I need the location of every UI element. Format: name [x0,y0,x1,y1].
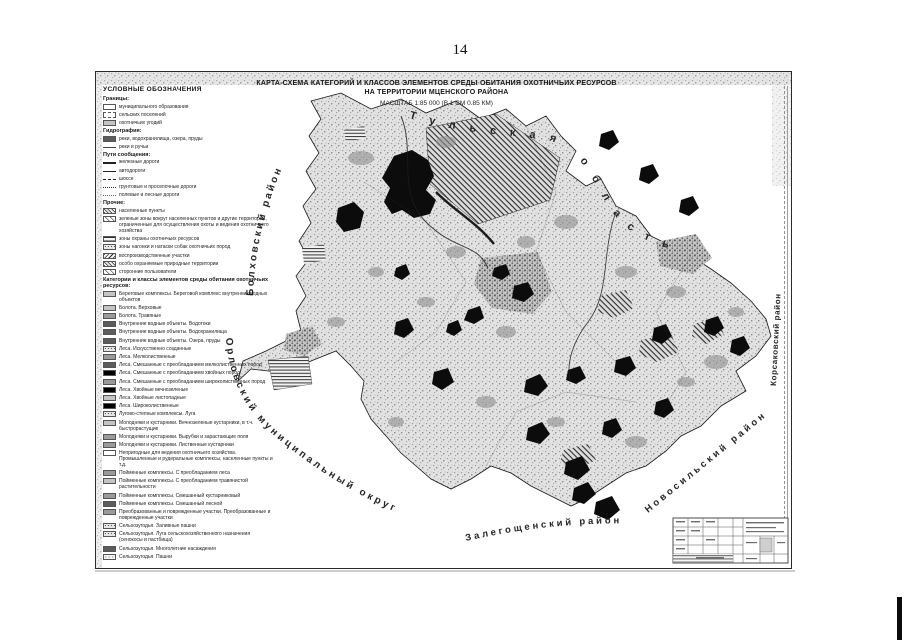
legend-item-label: Внутренние водные объекты. Озера, пруды [119,338,220,344]
legend-section-header: Категории и классы элементов среды обита… [103,277,273,289]
legend-swatch [103,216,116,222]
legend-item-label: Сельхозугодья. Луга сельскохозяйственног… [119,531,273,543]
legend-item-label: зоны нагонки и натаски собак охотничьих … [119,244,230,250]
legend-section-header: Прочие: [103,200,273,206]
legend-item-label: Болота. Травяные [119,313,161,319]
legend-item: Леса. Смешанные с преобладанием широколи… [103,379,273,385]
legend-item-label: сторонние пользователи [119,269,176,275]
legend-item-label: Внутренние водные объекты. Водотоки [119,321,211,327]
legend-swatch [103,554,116,560]
legend-item: Непригодные для ведения охотничьего хозя… [103,450,273,468]
legend-item: Пойменные комплексы. Смешанный кустарник… [103,493,273,499]
page-number: 14 [430,42,490,59]
legend-item-label: Сельхозугодья. Многолетние насаждения [119,546,216,552]
legend-swatch [103,379,116,385]
legend-swatch [103,434,116,440]
legend-item-label: Пойменные комплексы. Смешанный лесной [119,501,222,507]
legend-section-header: Пути сообщения: [103,152,273,158]
legend-item-label: Сельхозугодья. Пашни [119,554,172,560]
legend-swatch [103,171,116,172]
legend-swatch [103,162,116,164]
legend-item: реки, водохранилища, озера, пруды [103,136,273,142]
legend-swatch [103,244,116,250]
legend-item-label: шоссе [119,176,134,182]
legend-item: населенные пункты [103,208,273,214]
legend-swatch [103,112,116,118]
district-shape [238,93,771,520]
legend-item: охотничьих угодий [103,120,273,126]
legend-item: Пойменные комплексы. С преобладанием тра… [103,478,273,490]
legend-swatch [103,253,116,259]
legend-item: полевые и лесные дороги [103,192,273,198]
legend-swatch [103,179,116,180]
legend-item-label: Лугово-степные комплексы. Луга [119,411,195,417]
legend-item: Внутренние водные объекты. Озера, пруды [103,338,273,344]
legend-item: особо охраняемые природные территории [103,261,273,267]
legend-item-label: Леса. Смешанные с преобладанием широколи… [119,379,265,385]
legend-swatch [103,420,116,426]
title-block-stamp [673,518,788,563]
legend-swatch [103,313,116,319]
legend-item: Молодняки и кустарники. Вырубки и зараст… [103,434,273,440]
legend-swatch [103,354,116,360]
map-title: КАРТА-СХЕМА КАТЕГОРИЙ И КЛАССОВ ЭЛЕМЕНТО… [214,80,659,108]
legend-item-label: Пойменные комплексы. Смешанный кустарник… [119,493,240,499]
legend-item-label: охотничьих угодий [119,120,162,126]
legend-section: Прочие:населенные пунктызеленые зоны вок… [103,200,273,275]
scan-shadow-line [95,570,795,572]
legend-item-label: Преобразованные и поврежденные участки. … [119,509,273,521]
legend-item: Сельхозугодья. Заливные пашни [103,523,273,529]
map-scale-note: МАСШТАБ 1:85 000 (В 1 СМ 0.85 КМ) [214,100,659,108]
legend-item-label: Молодняки и кустарники. Вырубки и зараст… [119,434,248,440]
legend-swatch [103,195,116,196]
legend-item-label: Сельхозугодья. Заливные пашни [119,523,196,529]
legend-section-header: Гидрография: [103,128,273,134]
legend-item-label: Береговые комплексы. Береговой комплекс … [119,291,273,303]
legend-swatch [103,104,116,110]
legend-item-label: железные дороги [119,159,159,165]
legend-item-label: Болота. Верховые [119,305,162,311]
legend-item-label: реки и ручьи [119,144,148,150]
legend-item: зоны нагонки и натаски собак охотничьих … [103,244,273,250]
legend-item: Внутренние водные объекты. Водохранилища [103,329,273,335]
legend-swatch [103,450,116,456]
legend-item-label: Молодняки и кустарники. Лиственные куста… [119,442,234,448]
legend-section: Категории и классы элементов среды обита… [103,277,273,560]
legend-item-label: автодороги [119,168,145,174]
legend: УСЛОВНЫЕ ОБОЗНАЧЕНИЯ Границы:муниципальн… [103,86,273,564]
legend-item: Преобразованные и поврежденные участки. … [103,509,273,521]
legend-item-label: зоны охраны охотничьих ресурсов [119,236,199,242]
legend-item-label: Леса. Хвойные вечнозеленые [119,387,188,393]
legend-item-label: Леса. Широколиственные [119,403,179,409]
legend-swatch [103,531,116,537]
legend-item: Молодняки и кустарники. Вечнозеленые кус… [103,420,273,432]
region-label-zalegoshchensky-rayon: Залегощенский район [464,515,622,544]
legend-swatch [103,442,116,448]
legend-swatch [103,493,116,499]
legend-item: железные дороги [103,159,273,165]
legend-swatch [103,370,116,376]
legend-item-label: зеленые зоны вокруг населенных пунктов и… [119,216,273,234]
legend-swatch [103,261,116,267]
legend-item-label: Молодняки и кустарники. Вечнозеленые кус… [119,420,273,432]
legend-swatch [103,147,116,148]
legend-swatch [103,236,116,242]
legend-swatch [103,470,116,476]
legend-item: Сельхозугодья. Пашни [103,554,273,560]
legend-item-label: полевые и лесные дороги [119,192,179,198]
legend-item-label: реки, водохранилища, озера, пруды [119,136,203,142]
map-title-line2: НА ТЕРРИТОРИИ МЦЕНСКОГО РАЙОНА [214,89,659,98]
legend-item: сельских поселений [103,112,273,118]
legend-sections: Границы:муниципального образованиясельск… [103,96,273,560]
legend-item-label: Пойменные комплексы. С преобладанием лес… [119,470,230,476]
legend-item: Леса. Хвойные вечнозеленые [103,387,273,393]
legend-item: Лугово-степные комплексы. Луга [103,411,273,417]
legend-section: Гидрография:реки, водохранилища, озера, … [103,128,273,150]
legend-swatch [103,136,116,142]
legend-item-label: Внутренние водные объекты. Водохранилища [119,329,227,335]
legend-item: шоссе [103,176,273,182]
legend-swatch [103,546,116,552]
legend-swatch [103,305,116,311]
legend-swatch [103,501,116,507]
legend-swatch [103,120,116,126]
legend-item-label: особо охраняемые природные территории [119,261,218,267]
legend-item-label: населенные пункты [119,208,165,214]
legend-swatch [103,523,116,529]
legend-item: Леса. Хвойные листопадные [103,395,273,401]
legend-swatch [103,395,116,401]
legend-item-label: Леса. Мелколиственные [119,354,176,360]
legend-item-label: Леса. Искусственно созданные [119,346,191,352]
legend-item: Пойменные комплексы. С преобладанием лес… [103,470,273,476]
legend-item: муниципального образования [103,104,273,110]
legend-swatch [103,387,116,393]
legend-item-label: Леса. Смешанные с преобладанием хвойных … [119,370,240,376]
legend-swatch [103,338,116,344]
legend-swatch [103,187,116,188]
document-page: { "page": { "number": "14" }, "map": { "… [0,0,905,640]
legend-item: Болота. Верховые [103,305,273,311]
region-label-korsakovsky-rayon: Корсаковский район [769,293,783,386]
legend-swatch [103,509,116,515]
legend-swatch [103,478,116,484]
legend-item: Сельхозугодья. Луга сельскохозяйственног… [103,531,273,543]
legend-item: сторонние пользователи [103,269,273,275]
legend-item: Внутренние водные объекты. Водотоки [103,321,273,327]
legend-item-label: Непригодные для ведения охотничьего хозя… [119,450,273,468]
legend-item-label: Леса. Смешанные с преобладанием мелколис… [119,362,262,368]
legend-item-label: Леса. Хвойные листопадные [119,395,186,401]
legend-section: Границы:муниципального образованиясельск… [103,96,273,126]
legend-item: Сельхозугодья. Многолетние насаждения [103,546,273,552]
legend-item: Леса. Смешанные с преобладанием мелколис… [103,362,273,368]
legend-swatch [103,269,116,275]
legend-item: реки и ручьи [103,144,273,150]
legend-title: УСЛОВНЫЕ ОБОЗНАЧЕНИЯ [103,86,273,93]
legend-item: Леса. Искусственно созданные [103,346,273,352]
legend-item-label: воспроизводственные участки [119,253,190,259]
legend-swatch [103,329,116,335]
map-frame: Тульская область Болховский район Орловс… [95,71,792,569]
legend-section: Пути сообщения:железные дорогиавтодороги… [103,152,273,198]
legend-swatch [103,411,116,417]
legend-item-label: сельских поселений [119,112,166,118]
map-title-line1: КАРТА-СХЕМА КАТЕГОРИЙ И КЛАССОВ ЭЛЕМЕНТО… [214,80,659,89]
legend-item: автодороги [103,168,273,174]
legend-swatch [103,291,116,297]
legend-swatch [103,346,116,352]
legend-section-header: Границы: [103,96,273,102]
legend-item-label: Пойменные комплексы. С преобладанием тра… [119,478,273,490]
legend-item: Леса. Широколиственные [103,403,273,409]
legend-item: Береговые комплексы. Береговой комплекс … [103,291,273,303]
legend-item: зоны охраны охотничьих ресурсов [103,236,273,242]
scan-artifact-bar [897,597,902,640]
legend-item: Леса. Мелколиственные [103,354,273,360]
legend-item: Пойменные комплексы. Смешанный лесной [103,501,273,507]
legend-item-label: грунтовые и проселочные дороги [119,184,196,190]
legend-item: воспроизводственные участки [103,253,273,259]
legend-item: грунтовые и проселочные дороги [103,184,273,190]
legend-item: Молодняки и кустарники. Лиственные куста… [103,442,273,448]
legend-item: Болота. Травяные [103,313,273,319]
legend-item: Леса. Смешанные с преобладанием хвойных … [103,370,273,376]
legend-swatch [103,321,116,327]
legend-swatch [103,403,116,409]
legend-swatch [103,362,116,368]
legend-item: зеленые зоны вокруг населенных пунктов и… [103,216,273,234]
legend-swatch [103,208,116,214]
legend-item-label: муниципального образования [119,104,188,110]
